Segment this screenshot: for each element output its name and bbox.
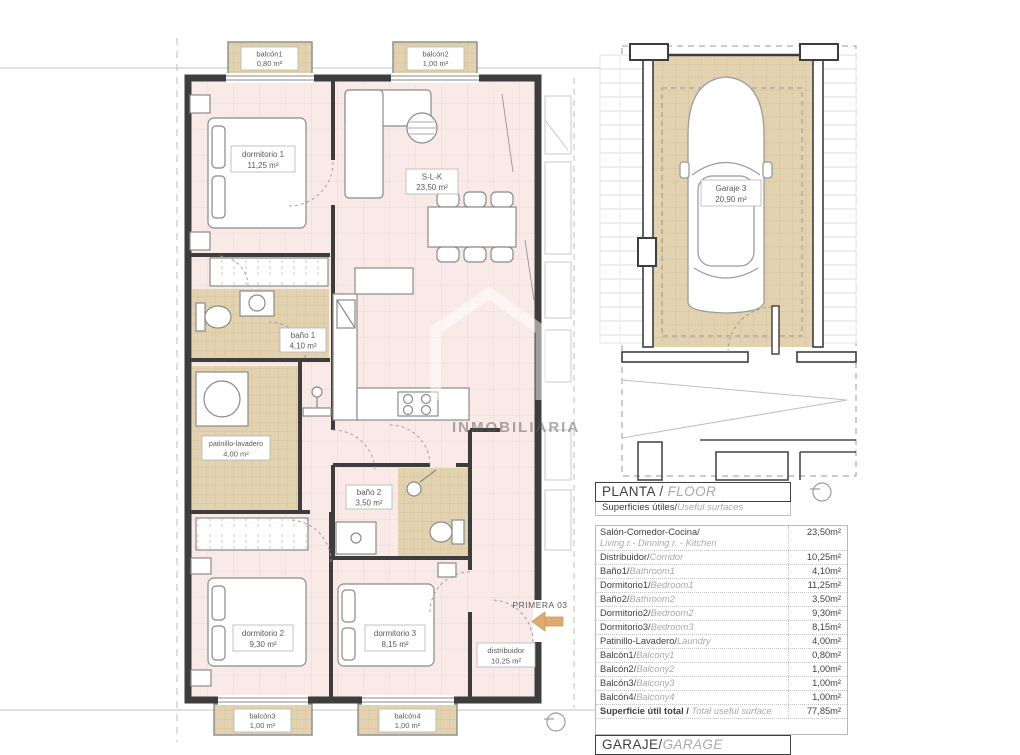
row-label-en: Bathroom1 (629, 566, 674, 576)
row-value: 3,50m² (788, 593, 847, 606)
ramp-lines (622, 380, 847, 438)
row-value: 23,50m² (788, 526, 847, 550)
row-label-en: Laundry (677, 636, 711, 646)
row-value: 0,80m² (788, 649, 847, 662)
row-label-es: Balcón4/ (600, 692, 636, 702)
garage-area: 20,90 m² (715, 195, 747, 204)
balcony1-area: 0,80 m² (257, 59, 283, 68)
row-value: 9,30m² (788, 607, 847, 620)
row-label-en: Bedroom3 (651, 622, 694, 632)
row-label-es: Balcón2/ (600, 664, 636, 674)
row-value: 4,00m² (788, 635, 847, 648)
balcony4-label: balcón4 (394, 712, 420, 721)
dorm3-area: 8,15 m² (381, 640, 408, 649)
row-label-en: Bedroom1 (651, 580, 694, 590)
garage-lower-structures (638, 440, 856, 480)
row-value: 10,25m² (788, 551, 847, 564)
table-row: Baño2/Bathroom2 3,50m² (596, 593, 847, 607)
balcony4-area: 1,00 m² (395, 721, 421, 730)
row-label-en: Balcony4 (636, 692, 674, 702)
row-label-es: Dormitorio2/ (600, 608, 651, 618)
bath2-area: 3,50 m² (355, 499, 382, 508)
row-label-en: Corridor (650, 552, 684, 562)
row-label-es: Balcón1/ (600, 650, 636, 660)
bath1-area: 4,10 m² (289, 342, 316, 351)
table-row: Balcón3/Balcony3 1,00m² (596, 677, 847, 691)
panel-title-en: FLOOR (668, 484, 717, 499)
corridor-area: 10,25 m² (491, 657, 521, 666)
total-label-es: Superficie útil total / (600, 706, 691, 716)
table-row: Distribuidor/Corridor 10,25m² (596, 551, 847, 565)
laundry-label: patinillo-lavadero (209, 439, 263, 448)
balcony1-label: balcón1 (256, 50, 282, 59)
row-label-en: Bathroom2 (629, 594, 674, 604)
table-row: Balcón2/Balcony2 1,00m² (596, 663, 847, 677)
table-total-row: Superficie útil total / Total useful sur… (596, 705, 847, 719)
surfaces-table: Salón-Comedor-Cocina/ Living r.- Dinning… (595, 525, 848, 735)
table-row: Dormitorio3/Bedroom3 8,15m² (596, 621, 847, 635)
table-row: Patinillo-Lavadero/Laundry 4,00m² (596, 635, 847, 649)
row-label-es: Dormitorio1/ (600, 580, 651, 590)
row-label-es: Salón-Comedor-Cocina/ (600, 527, 786, 538)
slk-label: S-L-K (422, 173, 443, 182)
dorm2-label: dormitorio 2 (242, 629, 285, 638)
wardrobe-dorm2 (196, 518, 308, 550)
dorm1-area: 11,25 m² (248, 161, 279, 170)
floorplan-drawing: INMOBILIARIA balcón1 0,80 m² balcón2 1,0… (0, 0, 1020, 745)
table-row: Dormitorio1/Bedroom1 11,25m² (596, 579, 847, 593)
panel-subtitle-es: Superficies útiles/ (602, 502, 677, 513)
row-label-es: Balcón3/ (600, 678, 636, 688)
garage-section-header: GARAJE/GARAGE (595, 735, 791, 755)
wardrobe-dorm1 (210, 258, 328, 286)
panel-subtitle-en: Useful surfaces (677, 502, 743, 513)
table-row: Balcón1/Balcony1 0,80m² (596, 649, 847, 663)
bath1-label: baño 1 (291, 331, 316, 340)
balcony2-label: balcón2 (422, 50, 448, 59)
row-label-es: Patinillo-Lavadero/ (600, 636, 677, 646)
row-label-es: Baño1/ (600, 566, 629, 576)
row-value: 4,10m² (788, 565, 847, 578)
surfaces-panel: PLANTA / FLOOR Superficies útiles/Useful… (595, 482, 851, 735)
corridor-label: distribuidor (487, 646, 525, 655)
balcony3-label: balcón3 (249, 712, 275, 721)
table-row: Salón-Comedor-Cocina/ Living r.- Dinning… (596, 526, 847, 551)
total-label-en: Total useful surface (691, 706, 771, 716)
table-row: Baño1/Bathroom1 4,10m² (596, 565, 847, 579)
row-value: 11,25m² (788, 579, 847, 592)
slk-area: 23,50 m² (416, 183, 448, 192)
dorm1-label: dormitorio 1 (242, 150, 285, 159)
dorm2-area: 9,30 m² (249, 640, 276, 649)
bath2-label: baño 2 (357, 488, 382, 497)
row-label-en: Living r.- Dinning r. - Kitchen (600, 538, 786, 549)
table-row: Dormitorio2/Bedroom2 9,30m² (596, 607, 847, 621)
row-value: 8,15m² (788, 621, 847, 634)
row-label-es: Distribuidor/ (600, 552, 650, 562)
panel-subtitle: Superficies útiles/Useful surfaces (595, 502, 791, 516)
row-label-en: Balcony1 (636, 650, 674, 660)
panel-title-es: PLANTA / (602, 484, 668, 499)
row-label-en: Bedroom2 (651, 608, 694, 618)
dorm3-label: dormitorio 3 (374, 629, 417, 638)
neighbour-unit (545, 96, 571, 550)
row-value: 1,00m² (788, 691, 847, 704)
garage-label: Garaje 3 (716, 184, 747, 193)
panel-title: PLANTA / FLOOR (595, 482, 791, 502)
row-label-es: Dormitorio3/ (600, 622, 651, 632)
total-value: 77,85m² (788, 705, 847, 718)
laundry-area: 4,00 m² (223, 450, 249, 459)
watermark-text: INMOBILIARIA (452, 419, 580, 436)
unit-label: PRIMERA 03 (512, 600, 567, 610)
row-label-en: Balcony2 (636, 664, 674, 674)
row-label-es: Baño2/ (600, 594, 629, 604)
row-label-en: Balcony3 (636, 678, 674, 688)
table-row: Balcón4/Balcony4 1,00m² (596, 691, 847, 705)
garage-plan (600, 44, 856, 480)
balcony3-area: 1,00 m² (250, 721, 276, 730)
row-value: 1,00m² (788, 677, 847, 690)
row-value: 1,00m² (788, 663, 847, 676)
balcony2-area: 1,00 m² (423, 59, 449, 68)
